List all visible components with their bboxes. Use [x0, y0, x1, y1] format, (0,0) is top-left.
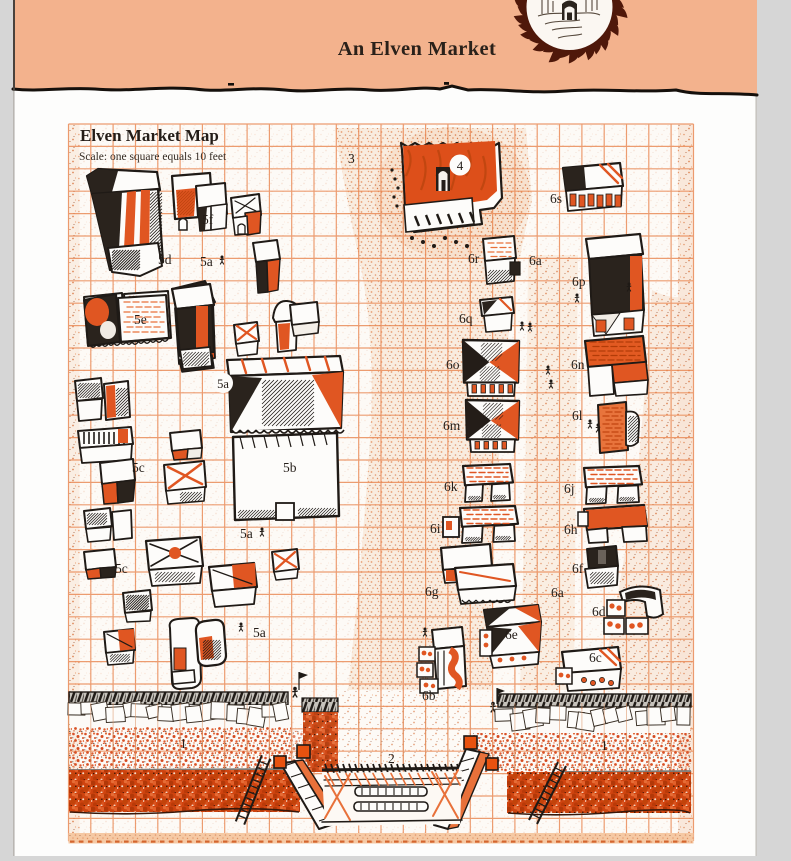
svg-text:6d: 6d: [592, 604, 606, 619]
svg-text:6f: 6f: [572, 561, 584, 576]
svg-text:5e: 5e: [134, 312, 147, 327]
svg-text:6j: 6j: [564, 481, 575, 496]
svg-text:Elven Market Map: Elven Market Map: [80, 126, 219, 145]
svg-text:6o: 6o: [446, 357, 460, 372]
svg-text:6s: 6s: [550, 191, 562, 206]
svg-text:6r: 6r: [468, 251, 480, 266]
svg-text:6i: 6i: [430, 521, 441, 536]
svg-text:5b: 5b: [283, 460, 297, 475]
svg-text:6k: 6k: [444, 479, 458, 494]
svg-text:5a: 5a: [253, 625, 266, 640]
svg-text:6b: 6b: [422, 688, 436, 703]
svg-text:5c: 5c: [132, 460, 145, 475]
svg-text:4: 4: [457, 158, 464, 173]
svg-text:5a: 5a: [200, 254, 213, 269]
svg-text:6n: 6n: [571, 357, 585, 372]
svg-text:An Elven Market: An Elven Market: [338, 38, 497, 60]
svg-text:5c: 5c: [115, 561, 128, 576]
svg-text:5a: 5a: [240, 526, 253, 541]
svg-text:3: 3: [348, 151, 355, 166]
svg-text:6a: 6a: [551, 585, 564, 600]
svg-text:6c: 6c: [589, 650, 602, 665]
svg-text:1: 1: [601, 738, 608, 753]
svg-text:6l: 6l: [572, 408, 583, 423]
svg-text:6e: 6e: [505, 627, 518, 642]
svg-text:6h: 6h: [564, 522, 578, 537]
svg-text:6m: 6m: [443, 418, 461, 433]
svg-text:6q: 6q: [459, 311, 473, 326]
svg-text:2: 2: [388, 751, 395, 766]
svg-text:Scale: one square equals 10 fe: Scale: one square equals 10 feet: [79, 151, 227, 163]
svg-text:6p: 6p: [572, 274, 586, 289]
svg-text:1: 1: [180, 736, 187, 751]
svg-text:5d: 5d: [158, 252, 172, 267]
svg-text:5f: 5f: [202, 212, 214, 227]
svg-text:6g: 6g: [425, 584, 439, 599]
svg-text:6a: 6a: [529, 253, 542, 268]
svg-text:5a: 5a: [217, 377, 229, 391]
